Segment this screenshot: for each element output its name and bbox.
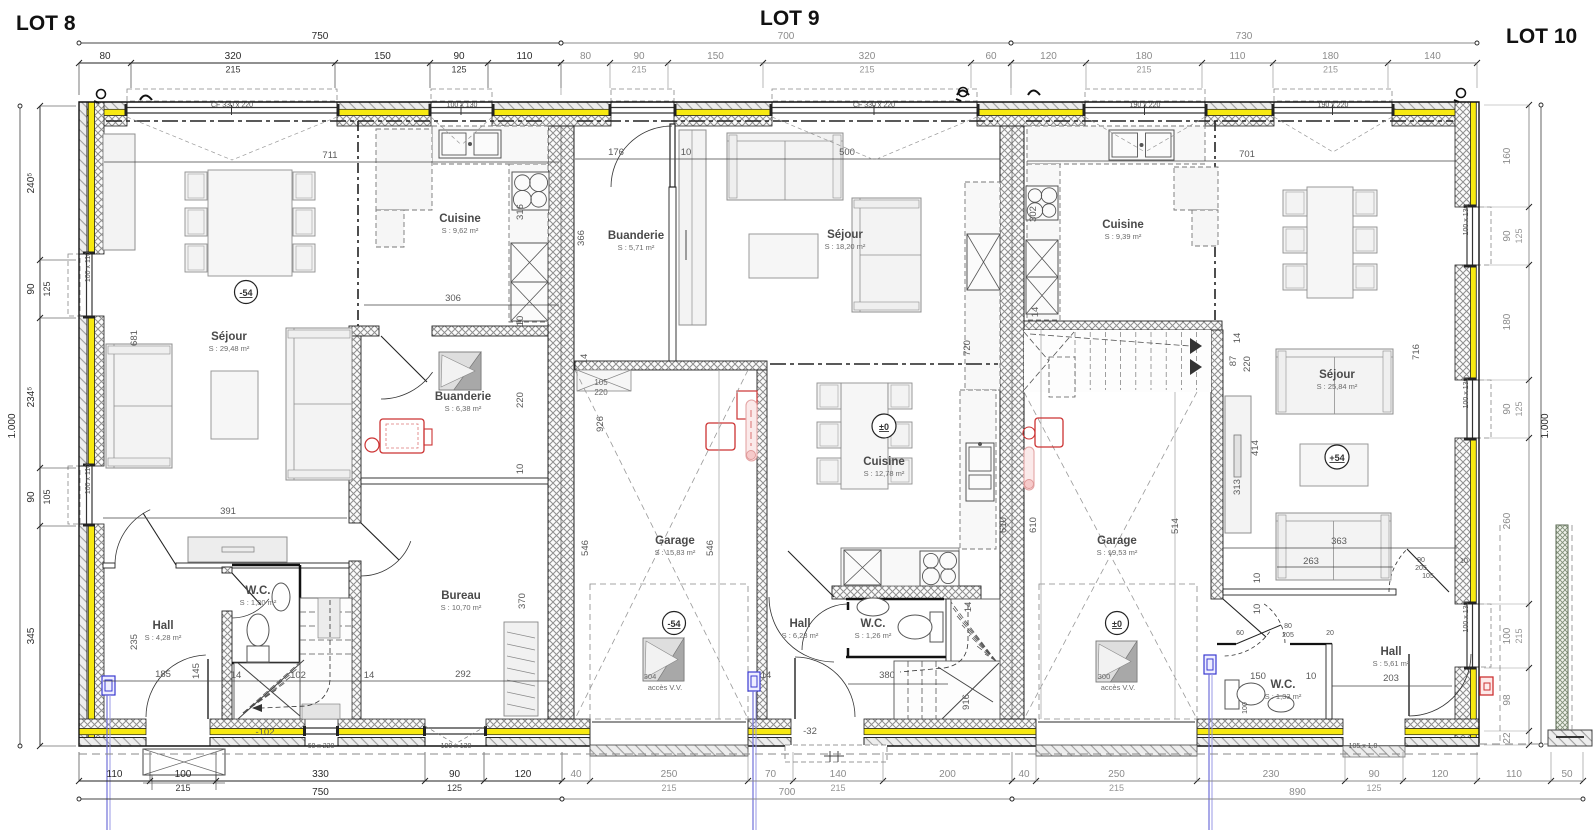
svg-text:391: 391 xyxy=(220,506,236,517)
svg-text:14: 14 xyxy=(1030,307,1041,318)
svg-text:100 x 130: 100 x 130 xyxy=(1463,602,1470,633)
svg-text:+54: +54 xyxy=(1329,453,1344,463)
svg-text:414: 414 xyxy=(1250,440,1261,456)
svg-text:250: 250 xyxy=(1108,769,1125,780)
svg-text:accès V.V.: accès V.V. xyxy=(648,683,682,692)
svg-text:14: 14 xyxy=(579,354,590,365)
svg-text:185: 185 xyxy=(155,669,171,680)
svg-text:215: 215 xyxy=(1136,65,1151,75)
svg-text:215: 215 xyxy=(661,783,676,793)
svg-text:±0: ±0 xyxy=(1112,619,1122,629)
svg-text:60 x 220: 60 x 220 xyxy=(308,743,335,750)
svg-text:100 x 130: 100 x 130 xyxy=(1463,378,1470,409)
svg-text:40: 40 xyxy=(1018,769,1030,780)
svg-text:Buanderie: Buanderie xyxy=(435,391,491,403)
svg-text:100: 100 xyxy=(1502,627,1513,644)
svg-text:190 x 130: 190 x 130 xyxy=(441,743,472,750)
svg-text:320: 320 xyxy=(859,51,876,62)
svg-text:80: 80 xyxy=(1284,623,1292,630)
svg-text:215: 215 xyxy=(1323,65,1338,75)
svg-text:90: 90 xyxy=(449,769,461,780)
svg-text:14: 14 xyxy=(761,670,772,681)
svg-text:750: 750 xyxy=(312,787,329,798)
svg-text:90: 90 xyxy=(26,491,37,503)
svg-text:546: 546 xyxy=(580,540,591,556)
svg-text:125: 125 xyxy=(1366,783,1381,793)
svg-text:926: 926 xyxy=(595,416,606,432)
svg-text:CF 330 x 220: CF 330 x 220 xyxy=(853,102,895,109)
svg-text:916: 916 xyxy=(961,694,972,710)
svg-text:205: 205 xyxy=(1282,632,1294,639)
svg-text:890: 890 xyxy=(1289,787,1306,798)
svg-text:±0: ±0 xyxy=(879,422,889,432)
svg-text:-54: -54 xyxy=(239,288,252,298)
svg-text:234⁵: 234⁵ xyxy=(26,387,37,408)
svg-text:120: 120 xyxy=(515,769,532,780)
svg-text:716: 716 xyxy=(1411,344,1422,360)
svg-text:102: 102 xyxy=(290,670,306,681)
svg-text:514: 514 xyxy=(1170,518,1181,534)
svg-text:370: 370 xyxy=(517,593,528,609)
svg-text:610: 610 xyxy=(1028,517,1039,533)
svg-text:Hall: Hall xyxy=(152,620,173,632)
svg-text:Séjour: Séjour xyxy=(827,229,863,241)
svg-text:105: 105 xyxy=(1422,573,1434,580)
svg-text:Séjour: Séjour xyxy=(1319,369,1355,381)
svg-text:546: 546 xyxy=(705,540,716,556)
svg-text:380: 380 xyxy=(879,670,895,681)
svg-text:150: 150 xyxy=(374,51,391,62)
svg-text:125: 125 xyxy=(42,281,52,296)
svg-text:S : 4,28 m²: S : 4,28 m² xyxy=(145,633,182,642)
svg-text:10: 10 xyxy=(1252,604,1263,615)
svg-text:Cuisine: Cuisine xyxy=(863,456,905,468)
svg-text:140: 140 xyxy=(830,769,847,780)
svg-text:LOT 10: LOT 10 xyxy=(1506,25,1577,48)
svg-text:304: 304 xyxy=(644,672,657,681)
svg-text:Cuisine: Cuisine xyxy=(1102,219,1144,231)
svg-text:125: 125 xyxy=(451,65,466,75)
svg-text:150: 150 xyxy=(1250,671,1266,682)
svg-text:Buanderie: Buanderie xyxy=(608,230,664,242)
svg-text:90: 90 xyxy=(26,283,37,295)
svg-text:700: 700 xyxy=(778,31,795,42)
svg-text:125: 125 xyxy=(447,783,462,793)
svg-text:260: 260 xyxy=(1502,512,1513,529)
svg-text:S : 9,39 m²: S : 9,39 m² xyxy=(1105,232,1142,241)
svg-text:345: 345 xyxy=(26,627,37,644)
svg-text:S : 25,84 m²: S : 25,84 m² xyxy=(1317,382,1358,391)
svg-text:120: 120 xyxy=(1040,51,1057,62)
svg-text:220: 220 xyxy=(1242,356,1253,372)
svg-text:Garage: Garage xyxy=(1097,535,1137,547)
svg-text:Séjour: Séjour xyxy=(211,331,247,343)
svg-text:105: 105 xyxy=(594,378,608,387)
svg-text:150: 150 xyxy=(707,51,724,62)
svg-text:215: 215 xyxy=(631,65,646,75)
svg-text:100 x 110: 100 x 110 xyxy=(85,252,92,282)
svg-text:S : 6,38 m²: S : 6,38 m² xyxy=(445,404,482,413)
svg-text:190 x 220: 190 x 220 xyxy=(1130,102,1161,109)
svg-text:80: 80 xyxy=(99,51,111,62)
svg-text:263: 263 xyxy=(1303,556,1319,567)
svg-text:100: 100 xyxy=(1242,702,1249,714)
svg-text:LOT 9: LOT 9 xyxy=(760,7,820,30)
svg-text:10: 10 xyxy=(681,147,692,158)
svg-text:220: 220 xyxy=(594,388,608,397)
svg-text:14: 14 xyxy=(231,670,242,681)
svg-text:70: 70 xyxy=(765,769,777,780)
svg-text:S : 29,48 m²: S : 29,48 m² xyxy=(209,344,250,353)
svg-text:110: 110 xyxy=(107,769,123,780)
svg-text:100 x 110: 100 x 110 xyxy=(85,464,92,494)
svg-text:98: 98 xyxy=(1502,694,1513,706)
svg-text:302: 302 xyxy=(1028,206,1039,222)
svg-text:1.000: 1.000 xyxy=(7,413,18,438)
svg-text:S : 10,70 m²: S : 10,70 m² xyxy=(441,603,482,612)
svg-text:215: 215 xyxy=(1109,783,1124,793)
svg-text:720: 720 xyxy=(962,340,973,356)
svg-text:215: 215 xyxy=(175,783,190,793)
svg-text:60: 60 xyxy=(985,51,997,62)
svg-text:50: 50 xyxy=(1561,769,1573,780)
svg-text:180: 180 xyxy=(1502,313,1513,330)
svg-text:215: 215 xyxy=(859,65,874,75)
svg-text:Garage: Garage xyxy=(655,535,695,547)
svg-text:-102: -102 xyxy=(255,727,274,738)
svg-text:220: 220 xyxy=(515,392,526,408)
svg-text:610: 610 xyxy=(998,517,1009,533)
svg-text:90: 90 xyxy=(633,51,645,62)
svg-text:730: 730 xyxy=(1236,31,1253,42)
svg-text:W.C.: W.C. xyxy=(861,618,886,630)
svg-text:90: 90 xyxy=(1502,230,1513,242)
svg-text:W.C.: W.C. xyxy=(1271,679,1296,691)
svg-text:120: 120 xyxy=(1432,769,1449,780)
svg-text:180: 180 xyxy=(1322,51,1339,62)
svg-text:W.C.: W.C. xyxy=(246,585,271,597)
svg-text:190 x 220: 190 x 220 xyxy=(1318,102,1349,109)
svg-text:Cuisine: Cuisine xyxy=(439,213,481,225)
svg-text:S : 18,20 m²: S : 18,20 m² xyxy=(825,242,866,251)
svg-text:S : 19,53 m²: S : 19,53 m² xyxy=(1097,548,1138,557)
svg-text:140: 140 xyxy=(1424,51,1441,62)
svg-text:100 x 130: 100 x 130 xyxy=(1463,205,1470,236)
svg-text:10: 10 xyxy=(1460,558,1468,565)
svg-text:90: 90 xyxy=(453,51,465,62)
svg-text:180: 180 xyxy=(1136,51,1153,62)
svg-text:S : 1,33 m²: S : 1,33 m² xyxy=(1265,692,1302,701)
svg-text:330: 330 xyxy=(312,769,329,780)
svg-text:125: 125 xyxy=(1514,228,1524,243)
svg-text:Bureau: Bureau xyxy=(441,590,481,602)
svg-text:10: 10 xyxy=(515,316,526,327)
svg-text:292: 292 xyxy=(455,669,471,680)
svg-text:10: 10 xyxy=(1306,671,1317,682)
svg-text:215: 215 xyxy=(1514,628,1524,643)
svg-text:S : 6,28 m²: S : 6,28 m² xyxy=(782,631,819,640)
svg-text:S : 5,71 m²: S : 5,71 m² xyxy=(618,243,655,252)
svg-text:110: 110 xyxy=(517,51,533,62)
svg-text:S : 12,78 m²: S : 12,78 m² xyxy=(864,469,905,478)
svg-text:22: 22 xyxy=(1502,732,1513,744)
svg-text:110: 110 xyxy=(1230,51,1246,62)
svg-text:14: 14 xyxy=(364,670,375,681)
svg-text:14: 14 xyxy=(1232,333,1243,344)
svg-text:300: 300 xyxy=(1098,672,1111,681)
svg-text:S : 9,62 m²: S : 9,62 m² xyxy=(442,226,479,235)
svg-text:CF 330 x 220: CF 330 x 220 xyxy=(211,102,253,109)
svg-text:-54: -54 xyxy=(667,619,680,629)
svg-text:306: 306 xyxy=(445,293,461,304)
svg-text:accès V.V.: accès V.V. xyxy=(1101,683,1135,692)
svg-text:90: 90 xyxy=(1417,557,1425,564)
svg-text:250: 250 xyxy=(661,769,678,780)
svg-text:366: 366 xyxy=(576,230,587,246)
svg-text:700: 700 xyxy=(779,787,796,798)
svg-text:10: 10 xyxy=(515,464,526,475)
svg-text:363: 363 xyxy=(1331,536,1347,547)
svg-text:S : 1,26 m²: S : 1,26 m² xyxy=(855,631,892,640)
svg-text:316: 316 xyxy=(515,204,526,220)
svg-text:320: 320 xyxy=(225,51,242,62)
svg-text:200: 200 xyxy=(939,769,956,780)
svg-text:215: 215 xyxy=(225,65,240,75)
svg-text:240⁵: 240⁵ xyxy=(26,173,37,194)
svg-text:203: 203 xyxy=(1383,673,1399,684)
svg-text:100: 100 xyxy=(175,769,192,780)
svg-text:1.000: 1.000 xyxy=(1540,413,1551,438)
svg-text:-32: -32 xyxy=(803,726,817,737)
svg-text:60: 60 xyxy=(1236,630,1244,637)
svg-text:Hall: Hall xyxy=(1380,646,1401,658)
svg-text:87: 87 xyxy=(1228,356,1239,367)
svg-text:14: 14 xyxy=(963,602,974,613)
svg-text:40: 40 xyxy=(570,769,582,780)
svg-text:105: 105 xyxy=(42,489,52,504)
svg-text:750: 750 xyxy=(312,31,329,42)
svg-text:S : 15,83 m²: S : 15,83 m² xyxy=(655,548,696,557)
svg-text:105 x 1.0: 105 x 1.0 xyxy=(1349,743,1378,750)
svg-text:145: 145 xyxy=(191,663,202,679)
svg-text:S : 5,61 m²: S : 5,61 m² xyxy=(1373,659,1410,668)
svg-text:80: 80 xyxy=(580,51,592,62)
svg-text:176: 176 xyxy=(608,147,624,158)
svg-text:205: 205 xyxy=(1415,565,1427,572)
svg-text:215: 215 xyxy=(830,783,845,793)
svg-text:LOT 8: LOT 8 xyxy=(16,12,76,35)
svg-text:S : 1,30 m²: S : 1,30 m² xyxy=(240,598,277,607)
svg-text:90: 90 xyxy=(1368,769,1380,780)
svg-text:10: 10 xyxy=(1252,573,1263,584)
svg-text:125: 125 xyxy=(1514,401,1524,416)
svg-text:235: 235 xyxy=(129,634,140,650)
svg-text:100 x 130: 100 x 130 xyxy=(447,102,478,109)
svg-text:701: 701 xyxy=(1239,149,1255,160)
svg-text:20: 20 xyxy=(1326,630,1334,637)
svg-text:90: 90 xyxy=(1502,403,1513,415)
svg-text:Hall: Hall xyxy=(789,618,810,630)
svg-text:160: 160 xyxy=(1502,147,1513,164)
svg-text:110: 110 xyxy=(1506,769,1522,780)
svg-text:711: 711 xyxy=(322,150,337,161)
svg-text:313: 313 xyxy=(1232,479,1243,495)
svg-text:230: 230 xyxy=(1263,769,1280,780)
svg-text:500: 500 xyxy=(839,147,855,158)
svg-text:681: 681 xyxy=(129,330,140,346)
